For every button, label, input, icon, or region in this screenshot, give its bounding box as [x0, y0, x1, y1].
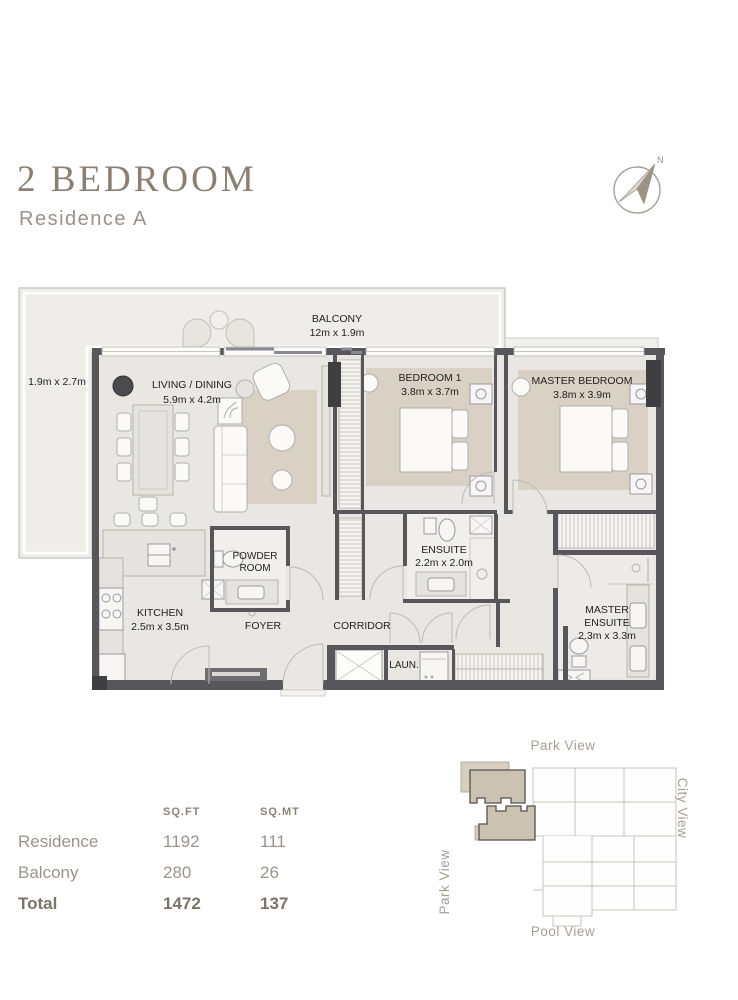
- col-header-sqmt: SQ.MT: [260, 806, 350, 821]
- row-label-balcony: Balcony: [18, 863, 163, 883]
- room-label-laundry: LAUN.: [389, 660, 418, 671]
- room-dims-kitchen: 2.5m x 3.5m: [131, 621, 189, 633]
- floor-plan: BALCONY 12m x 1.9m 1.9m x 2.7m LIVING / …: [0, 258, 738, 733]
- window-icons: [102, 347, 644, 356]
- total-sqft: 1472: [163, 894, 260, 914]
- room-dims-living: 5.9m x 4.2m: [163, 394, 221, 406]
- room-dims-master-ensuite: 2.3m x 3.3m: [578, 630, 636, 642]
- page-subtitle: Residence A: [19, 208, 148, 231]
- room-dims-balcony-side: 1.9m x 2.7m: [28, 376, 86, 388]
- room-label-foyer: FOYER: [245, 620, 282, 632]
- compass-icon: N: [601, 150, 685, 234]
- room-dims-ensuite: 2.2m x 2.0m: [415, 557, 473, 569]
- key-plan-highlighted-unit: [461, 762, 535, 840]
- room-label-kitchen: KITCHEN: [137, 607, 183, 619]
- room-label-powder-1: POWDER: [233, 551, 278, 562]
- key-plan-label-park-view-left: Park View: [437, 849, 452, 914]
- key-plan-label-city-view: City View: [675, 778, 690, 839]
- col-header-sqft: SQ.FT: [163, 806, 260, 821]
- room-label-balcony: BALCONY: [312, 313, 362, 325]
- brochure-page: 2 BEDROOM Residence A N: [0, 0, 738, 1000]
- compass-north-label: N: [657, 155, 664, 165]
- entry-step-inlay: [212, 672, 260, 676]
- area-table: SQ.FT SQ.MT Residence 1192 111 Balcony 2…: [18, 799, 350, 914]
- balcony-sqft: 280: [163, 863, 260, 883]
- room-label-corridor: CORRIDOR: [333, 620, 391, 632]
- residence-sqmt: 111: [260, 832, 350, 852]
- room-dims-balcony: 12m x 1.9m: [310, 327, 365, 339]
- room-label-master-ensuite-2: ENSUITE: [584, 617, 630, 629]
- page-title: 2 BEDROOM: [17, 158, 257, 201]
- column-icon: [113, 376, 133, 396]
- room-dims-master-bedroom: 3.8m x 3.9m: [553, 389, 611, 401]
- room-label-master-ensuite-1: MASTER: [585, 604, 629, 616]
- row-label-total: Total: [18, 894, 163, 914]
- room-dims-bedroom1: 3.8m x 3.7m: [401, 386, 459, 398]
- key-plan: Park View Park View City View Pool View: [425, 730, 705, 970]
- residence-sqft: 1192: [163, 832, 260, 852]
- room-label-living: LIVING / DINING: [152, 379, 232, 391]
- room-label-ensuite: ENSUITE: [421, 544, 467, 556]
- key-plan-building-outline: [533, 768, 676, 926]
- room-label-master-bedroom: MASTER BEDROOM: [532, 375, 633, 387]
- key-plan-label-pool-view: Pool View: [531, 924, 595, 939]
- row-label-residence: Residence: [18, 832, 163, 852]
- room-label-bedroom1: BEDROOM 1: [398, 372, 461, 384]
- balcony-sqmt: 26: [260, 863, 350, 883]
- total-sqmt: 137: [260, 894, 350, 914]
- room-label-powder-2: ROOM: [239, 563, 270, 574]
- key-plan-label-park-view-top: Park View: [530, 738, 595, 753]
